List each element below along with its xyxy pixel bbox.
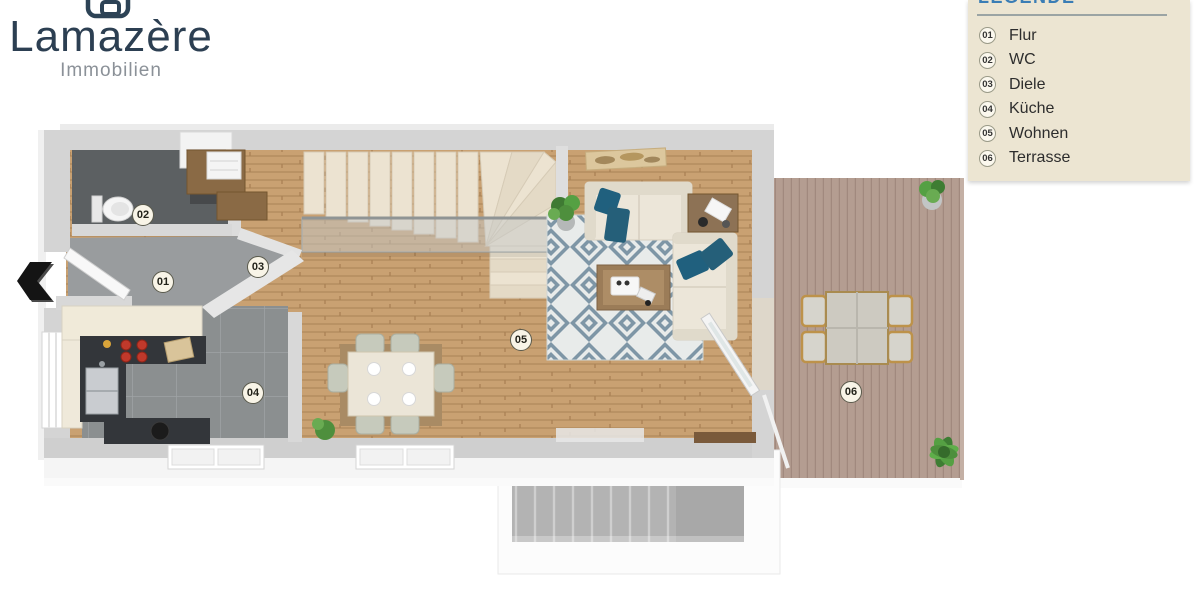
side-table: [688, 194, 738, 232]
coffee-table: [597, 265, 670, 310]
room-badge-03-diele: 03: [247, 256, 269, 278]
room-badge-06-terrasse: 06: [840, 381, 862, 403]
window-bottom-right: [356, 445, 454, 469]
window-bottom-left: [168, 445, 264, 469]
floor-plan-rendering: [0, 0, 1200, 600]
window-left-kitchen: [42, 332, 64, 428]
entrance-arrow: [17, 262, 54, 302]
room-badge-05-wohnen: 05: [510, 329, 532, 351]
page: 01 02 03 04 05 06 Lamazère Immobilien LE…: [0, 0, 1200, 600]
terrace-threshold: [694, 432, 756, 443]
floor-ledge: [556, 428, 644, 442]
room-badge-04-kueche: 04: [242, 382, 264, 404]
room-badge-02-wc: 02: [132, 204, 154, 226]
room-badge-01-flur: 01: [152, 271, 174, 293]
wall-art: [586, 148, 667, 170]
